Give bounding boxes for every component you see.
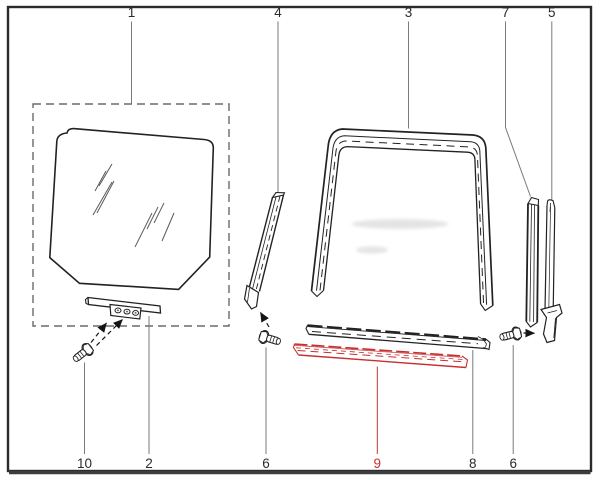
callout-9-highlighted[interactable]: 9 [374, 456, 382, 471]
callout-7[interactable]: 7 [502, 5, 510, 20]
window-glass [50, 129, 214, 290]
parts-diagram-page: 1 4 3 7 5 10 2 6 9 8 6 [0, 0, 600, 480]
callout-2[interactable]: 2 [145, 456, 153, 471]
parts-diagram-canvas: 1 4 3 7 5 10 2 6 9 8 6 [0, 0, 600, 480]
callout-10[interactable]: 10 [77, 456, 92, 471]
callout-6-right[interactable]: 6 [509, 456, 517, 471]
callout-8[interactable]: 8 [469, 456, 477, 471]
callout-4[interactable]: 4 [274, 5, 282, 20]
callout-5[interactable]: 5 [548, 5, 556, 20]
callout-1[interactable]: 1 [128, 5, 136, 20]
callout-3[interactable]: 3 [405, 5, 413, 20]
callout-6-left[interactable]: 6 [262, 456, 270, 471]
